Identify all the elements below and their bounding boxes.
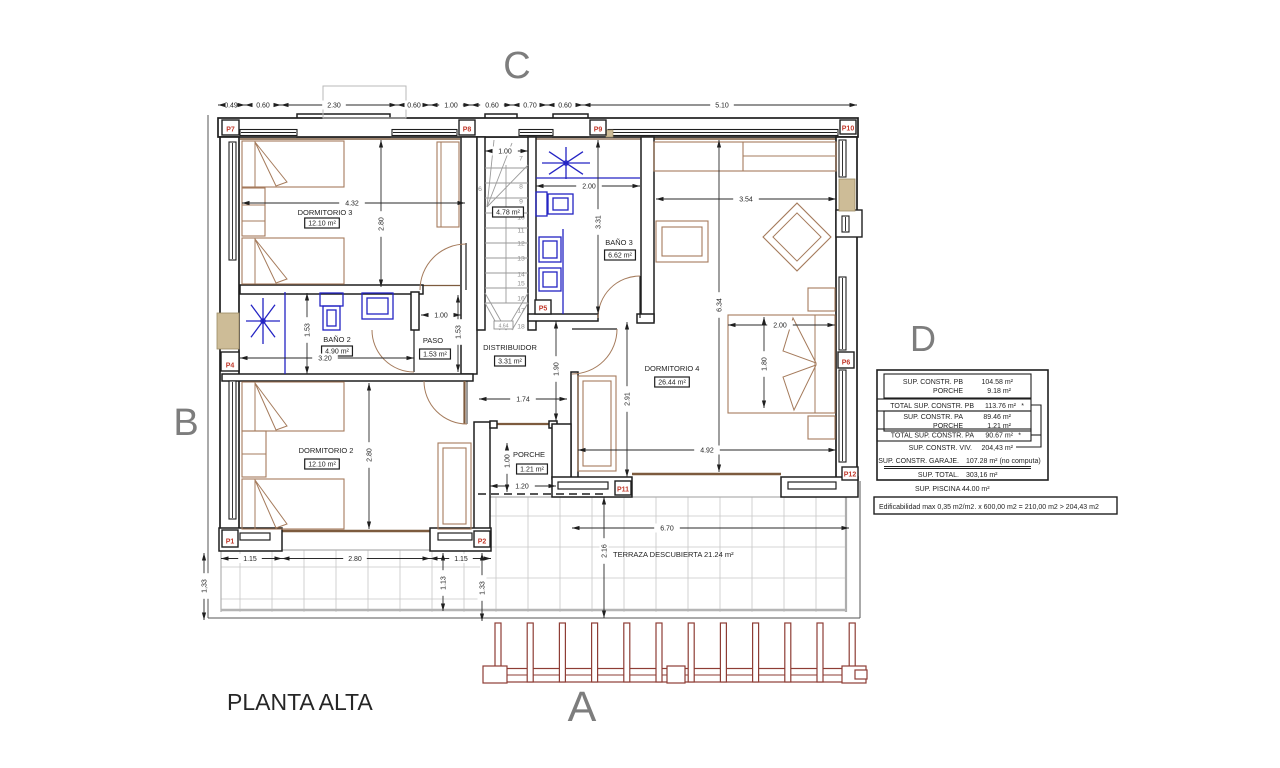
svg-text:2.30: 2.30: [327, 103, 341, 110]
svg-text:1.00: 1.00: [505, 454, 512, 468]
svg-text:SUP. CONSTR. PB: SUP. CONSTR. PB: [903, 379, 963, 386]
svg-text:1.13: 1.13: [441, 576, 448, 590]
svg-text:TOTAL SUP. CONSTR. PA: TOTAL SUP. CONSTR. PA: [891, 433, 975, 440]
svg-text:1.53: 1.53: [456, 325, 463, 339]
svg-text:SUP. PISCINA 44.00 m²: SUP. PISCINA 44.00 m²: [915, 486, 990, 493]
svg-text:204,43 m²: 204,43 m²: [981, 445, 1013, 452]
svg-text:18: 18: [517, 323, 525, 330]
svg-text:SUP. TOTAL.: SUP. TOTAL.: [918, 472, 959, 479]
svg-text:D: D: [910, 318, 936, 359]
svg-text:PORCHE: PORCHE: [933, 423, 963, 430]
svg-text:1.20: 1.20: [515, 484, 529, 491]
svg-text:BAÑO 3: BAÑO 3: [605, 238, 633, 247]
svg-text:SUP. CONSTR. GARAJE.: SUP. CONSTR. GARAJE.: [878, 458, 959, 465]
svg-text:B: B: [173, 402, 198, 444]
svg-text:1.15: 1.15: [454, 556, 468, 563]
svg-text:7: 7: [519, 155, 523, 162]
svg-text:*: *: [1018, 433, 1021, 440]
svg-text:4.64: 4.64: [498, 323, 508, 329]
svg-text:4.78 m²: 4.78 m²: [496, 209, 520, 216]
svg-text:3.31: 3.31: [596, 215, 603, 229]
svg-text:DISTRIBUIDOR: DISTRIBUIDOR: [483, 343, 537, 352]
svg-text:P7: P7: [226, 127, 235, 134]
svg-text:14: 14: [517, 271, 525, 278]
svg-text:0.49: 0.49: [224, 103, 238, 110]
svg-text:6.34: 6.34: [717, 298, 724, 312]
svg-text:26.44 m²: 26.44 m²: [658, 379, 686, 386]
svg-text:P11: P11: [617, 487, 629, 494]
svg-text:17: 17: [517, 307, 525, 314]
svg-text:1,33: 1,33: [202, 579, 209, 593]
svg-text:2.80: 2.80: [379, 217, 386, 231]
svg-text:9: 9: [519, 198, 523, 205]
svg-text:BAÑO 2: BAÑO 2: [323, 335, 351, 344]
svg-text:5.10: 5.10: [715, 103, 729, 110]
svg-text:104.58 m²: 104.58 m²: [981, 379, 1013, 386]
svg-text:2.80: 2.80: [367, 448, 374, 462]
svg-text:PASO: PASO: [423, 336, 443, 345]
svg-text:1.15: 1.15: [243, 556, 257, 563]
svg-text:P1: P1: [226, 539, 235, 546]
svg-text:DORMITORIO 2: DORMITORIO 2: [299, 446, 354, 455]
svg-text:90.67 m²: 90.67 m²: [985, 433, 1013, 440]
svg-text:P10: P10: [842, 126, 855, 133]
svg-text:12.10 m²: 12.10 m²: [308, 461, 336, 468]
svg-text:113.76 m²: 113.76 m²: [985, 403, 1017, 410]
svg-text:4.92: 4.92: [700, 448, 714, 455]
svg-text:C: C: [503, 45, 530, 87]
svg-text:PORCHE: PORCHE: [933, 388, 963, 395]
svg-text:DORMITORIO 4: DORMITORIO 4: [645, 364, 700, 373]
svg-text:TERRAZA DESCUBIERTA 21.24 m²: TERRAZA DESCUBIERTA 21.24 m²: [613, 550, 734, 559]
svg-text:0.60: 0.60: [558, 103, 572, 110]
svg-text:9.18 m²: 9.18 m²: [987, 388, 1011, 395]
svg-text:2.91: 2.91: [625, 392, 632, 406]
svg-text:P8: P8: [463, 127, 472, 134]
svg-text:PLANTA ALTA: PLANTA ALTA: [227, 689, 373, 715]
svg-text:1.21 m²: 1.21 m²: [987, 423, 1011, 430]
svg-text:12: 12: [517, 240, 525, 247]
svg-text:0.70: 0.70: [523, 103, 537, 110]
svg-text:303,16 m²: 303,16 m²: [966, 472, 998, 479]
svg-text:P2: P2: [478, 539, 487, 546]
svg-text:1.53 m²: 1.53 m²: [423, 351, 447, 358]
svg-text:2.00: 2.00: [773, 323, 787, 330]
svg-text:TOTAL SUP. CONSTR. PB: TOTAL SUP. CONSTR. PB: [890, 403, 974, 410]
svg-text:SUP. CONSTR. PA: SUP. CONSTR. PA: [903, 414, 963, 421]
svg-text:15: 15: [517, 280, 525, 287]
svg-text:SUP. CONSTR. VIV.: SUP. CONSTR. VIV.: [909, 445, 972, 452]
svg-text:3.20: 3.20: [318, 356, 332, 363]
svg-text:11: 11: [517, 227, 524, 234]
svg-text:P12: P12: [844, 472, 857, 479]
svg-text:1.74: 1.74: [516, 397, 530, 404]
svg-text:13: 13: [517, 255, 525, 262]
svg-text:3.31 m²: 3.31 m²: [498, 358, 522, 365]
svg-text:1.00: 1.00: [498, 149, 512, 156]
svg-text:1.21 m²: 1.21 m²: [520, 466, 544, 473]
svg-text:1.00: 1.00: [434, 313, 448, 320]
svg-text:6.70: 6.70: [660, 526, 674, 533]
svg-text:8: 8: [519, 183, 523, 190]
svg-text:1.80: 1.80: [762, 357, 769, 371]
svg-text:89.46 m²: 89.46 m²: [983, 414, 1011, 421]
svg-text:1.90: 1.90: [554, 362, 561, 376]
svg-text:2.16: 2.16: [602, 544, 609, 558]
svg-text:A: A: [568, 683, 597, 731]
svg-text:6: 6: [478, 186, 482, 193]
svg-text:PORCHE: PORCHE: [513, 450, 545, 459]
svg-text:2.00: 2.00: [582, 184, 596, 191]
svg-text:16: 16: [517, 295, 525, 302]
svg-text:1.00: 1.00: [444, 103, 458, 110]
svg-text:4.32: 4.32: [345, 201, 359, 208]
svg-text:*: *: [1021, 403, 1024, 410]
svg-text:12.10 m²: 12.10 m²: [308, 220, 336, 227]
svg-text:P5: P5: [539, 306, 548, 313]
svg-text:P4: P4: [226, 363, 235, 370]
svg-text:2.80: 2.80: [348, 556, 362, 563]
svg-text:107.28 m² (no computa): 107.28 m² (no computa): [966, 458, 1041, 465]
svg-text:Edificabilidad max 0,35 m2/m2: Edificabilidad max 0,35 m2/m2. x 600,00 …: [879, 504, 1099, 511]
svg-text:0.60: 0.60: [485, 103, 499, 110]
svg-text:0.60: 0.60: [407, 103, 421, 110]
svg-text:P6: P6: [842, 360, 851, 367]
svg-text:P9: P9: [594, 127, 603, 134]
svg-text:0.60: 0.60: [256, 103, 270, 110]
svg-text:1.53: 1.53: [305, 323, 312, 337]
svg-text:DORMITORIO 3: DORMITORIO 3: [298, 208, 353, 217]
svg-text:6.62 m²: 6.62 m²: [608, 252, 632, 259]
svg-text:3.54: 3.54: [739, 197, 753, 204]
svg-text:1.33: 1.33: [480, 581, 487, 595]
